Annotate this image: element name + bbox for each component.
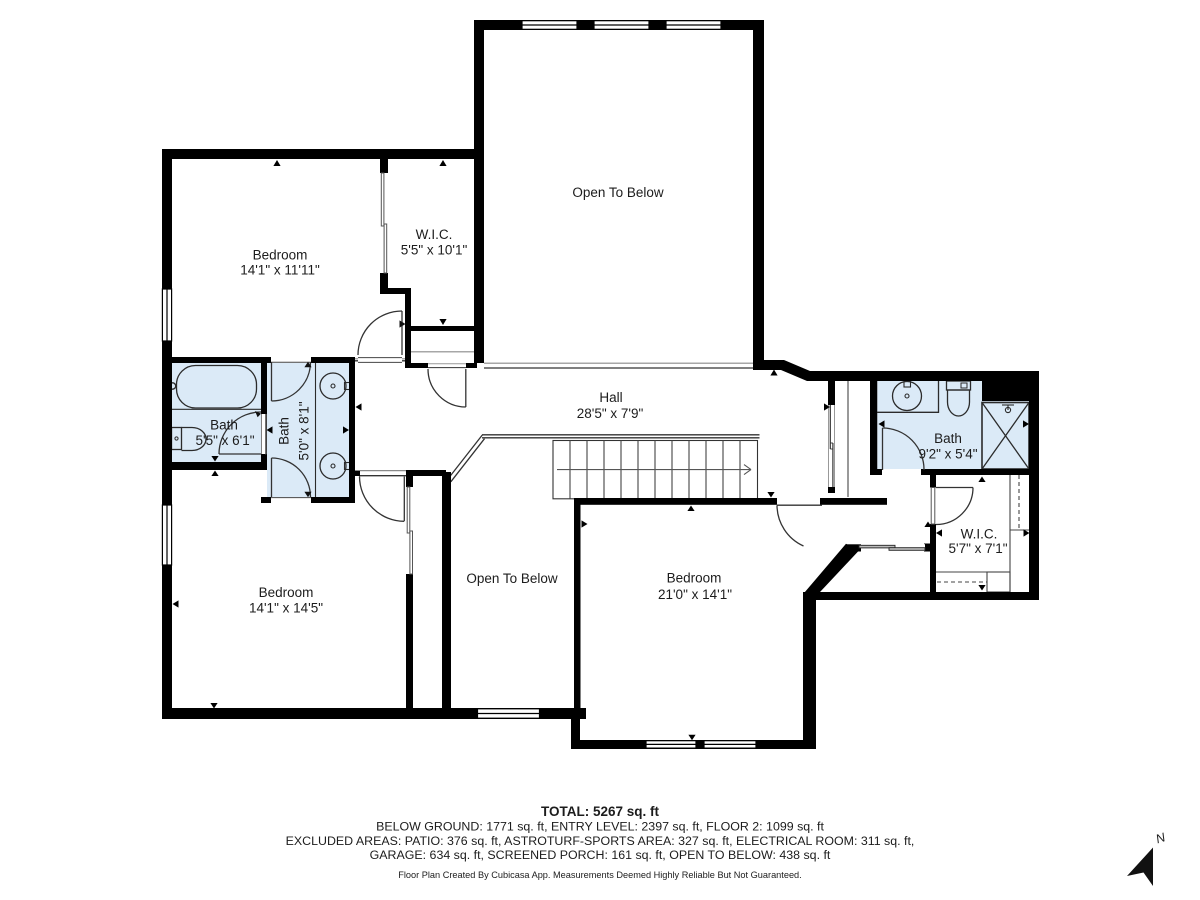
svg-text:5'0" x 8'1": 5'0" x 8'1" xyxy=(297,401,312,460)
svg-text:Bath: Bath xyxy=(934,431,962,446)
svg-text:GARAGE: 634 sq. ft, SCREENED P: GARAGE: 634 sq. ft, SCREENED PORCH: 161 … xyxy=(370,848,831,862)
svg-text:14'1" x 14'5": 14'1" x 14'5" xyxy=(249,601,323,616)
svg-text:Open To Below: Open To Below xyxy=(466,571,558,586)
svg-text:Bath: Bath xyxy=(210,418,238,433)
svg-text:Bedroom: Bedroom xyxy=(667,571,722,586)
svg-text:Open To Below: Open To Below xyxy=(572,185,664,200)
svg-text:Bath: Bath xyxy=(277,417,292,445)
svg-text:EXCLUDED AREAS: PATIO: 376 sq.: EXCLUDED AREAS: PATIO: 376 sq. ft, ASTRO… xyxy=(286,834,915,848)
svg-text:21'0" x 14'1": 21'0" x 14'1" xyxy=(658,587,732,602)
svg-text:28'5" x 7'9": 28'5" x 7'9" xyxy=(577,406,644,421)
svg-text:TOTAL: 5267 sq. ft: TOTAL: 5267 sq. ft xyxy=(541,804,660,819)
svg-text:9'2" x 5'4": 9'2" x 5'4" xyxy=(918,447,977,462)
svg-text:14'1" x 11'11": 14'1" x 11'11" xyxy=(240,263,320,278)
svg-text:W.I.C.: W.I.C. xyxy=(416,227,453,242)
svg-text:W.I.C.: W.I.C. xyxy=(961,527,998,542)
svg-text:Floor Plan Created By Cubicasa: Floor Plan Created By Cubicasa App. Meas… xyxy=(398,870,801,880)
svg-text:5'5" x 6'1": 5'5" x 6'1" xyxy=(195,433,254,448)
svg-text:Bedroom: Bedroom xyxy=(259,585,314,600)
svg-text:Hall: Hall xyxy=(599,390,622,405)
svg-text:BELOW GROUND: 1771 sq. ft, ENT: BELOW GROUND: 1771 sq. ft, ENTRY LEVEL: … xyxy=(376,820,824,834)
svg-text:5'7" x 7'1": 5'7" x 7'1" xyxy=(948,541,1007,556)
svg-text:5'5" x 10'1": 5'5" x 10'1" xyxy=(401,243,468,258)
svg-text:Bedroom: Bedroom xyxy=(253,248,308,263)
